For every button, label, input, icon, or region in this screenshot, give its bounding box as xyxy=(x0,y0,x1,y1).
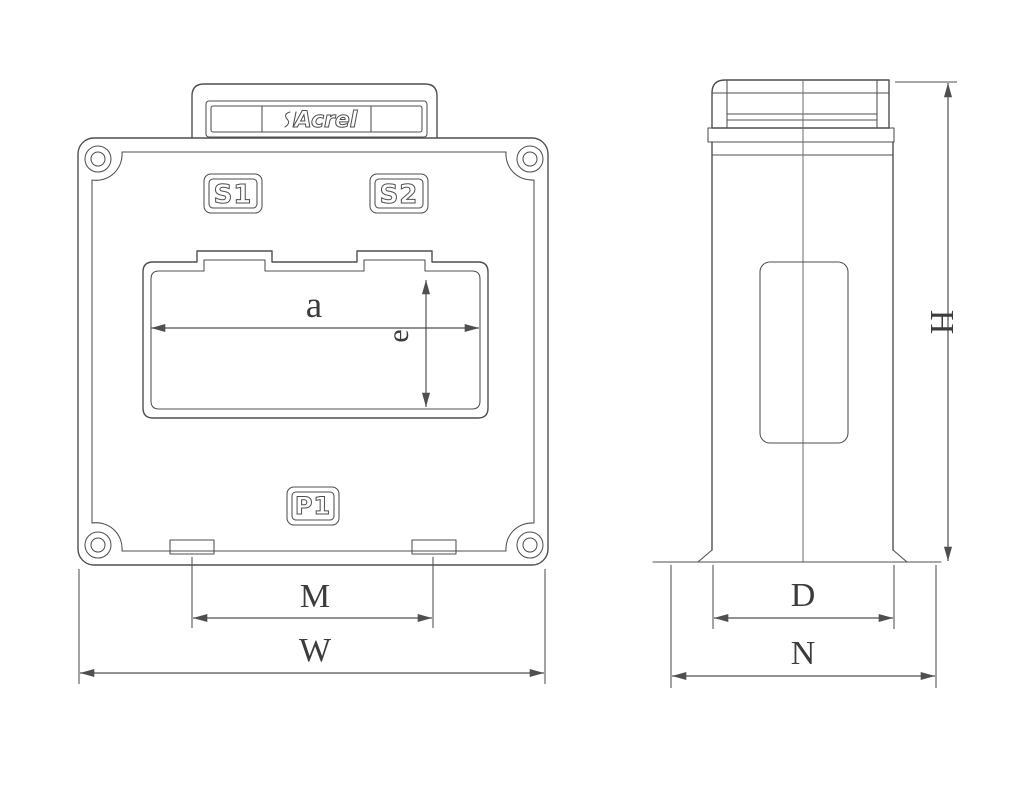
dimension-d-label: D xyxy=(791,577,816,614)
dimension-e-label: e xyxy=(382,329,415,342)
window-opening xyxy=(143,251,488,418)
screw-inner-circle xyxy=(91,538,105,552)
screw-inner-circle xyxy=(523,152,537,166)
terminal-cap xyxy=(708,80,894,142)
terminal-label-p1: P1 xyxy=(287,487,339,525)
dimension-d: D xyxy=(713,565,894,629)
cap-outline xyxy=(712,80,889,128)
corner-screw-bottom-left xyxy=(85,532,111,558)
dimension-n-label: N xyxy=(791,635,816,672)
screw-inner-circle xyxy=(523,538,537,552)
dimension-e: e xyxy=(382,280,426,407)
foot-flare-right xyxy=(893,550,907,562)
terminal-s1-text: S1 xyxy=(214,180,253,210)
mounting-foot-right xyxy=(412,540,456,554)
window-outer-contour xyxy=(143,251,488,418)
dimension-a: a xyxy=(151,285,479,328)
side-body xyxy=(653,80,941,562)
corner-screw-bottom-right xyxy=(517,532,543,558)
screw-outer-circle xyxy=(85,532,111,558)
drawing-canvas: Acrel S1 S2 xyxy=(0,0,1024,805)
dimension-w-label: W xyxy=(299,632,332,669)
body-recess-detail xyxy=(760,262,848,443)
window-inner-contour xyxy=(151,260,480,409)
corner-screw-top-left xyxy=(85,146,111,172)
dimension-a-label: a xyxy=(306,285,322,326)
mounting-feet xyxy=(170,540,456,554)
corner-screw-top-right xyxy=(517,146,543,172)
terminal-s2-text: S2 xyxy=(380,180,419,210)
dimension-h-label: H xyxy=(923,310,960,335)
screw-outer-circle xyxy=(517,146,543,172)
terminal-label-s1: S1 xyxy=(204,174,262,213)
dimension-h: H xyxy=(895,82,960,561)
ct-dimension-drawing: Acrel S1 S2 xyxy=(0,0,1024,805)
brand-plate: Acrel xyxy=(206,101,427,137)
screw-outer-circle xyxy=(517,532,543,558)
terminal-label-s2: S2 xyxy=(370,174,428,213)
foot-flare-left xyxy=(698,550,712,562)
side-view: H D N xyxy=(653,80,960,688)
screw-inner-circle xyxy=(91,152,105,166)
dimension-m: M xyxy=(192,557,433,628)
dimension-m-label: M xyxy=(300,578,330,615)
mounting-foot-left xyxy=(170,540,214,554)
brand-logo-text: Acrel xyxy=(293,108,358,133)
cap-collar xyxy=(708,128,894,142)
screw-outer-circle xyxy=(85,146,111,172)
terminal-p1-text: P1 xyxy=(295,492,331,520)
front-view: Acrel S1 S2 xyxy=(78,84,548,684)
